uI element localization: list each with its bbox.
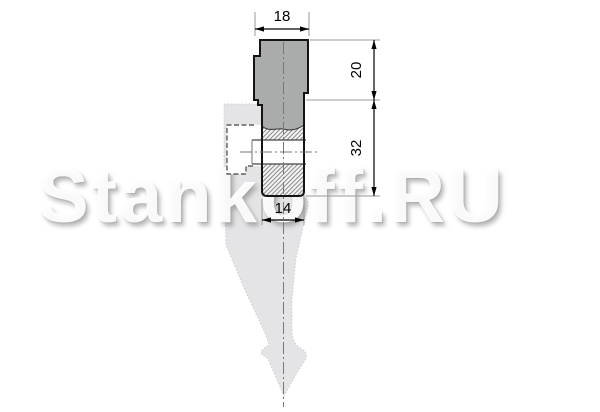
arrow-down-icon	[371, 91, 376, 100]
arrow-right-icon	[300, 26, 309, 31]
arrow-down-icon	[371, 187, 376, 196]
dimension-label-bottom-width: 14	[267, 201, 299, 217]
arrow-left-icon	[262, 217, 271, 222]
dimension-label-top-width: 18	[266, 9, 298, 25]
dimension-label-shank-height: 20	[349, 54, 365, 86]
drawing-canvas: Stankoff.RU	[0, 0, 600, 412]
arrow-up-icon	[371, 40, 376, 49]
arrow-up-icon	[371, 100, 376, 109]
dimension-label-body-height: 32	[349, 132, 365, 164]
arrow-left-icon	[255, 26, 264, 31]
section-drawing-layer	[0, 0, 600, 412]
arrow-right-icon	[295, 217, 304, 222]
